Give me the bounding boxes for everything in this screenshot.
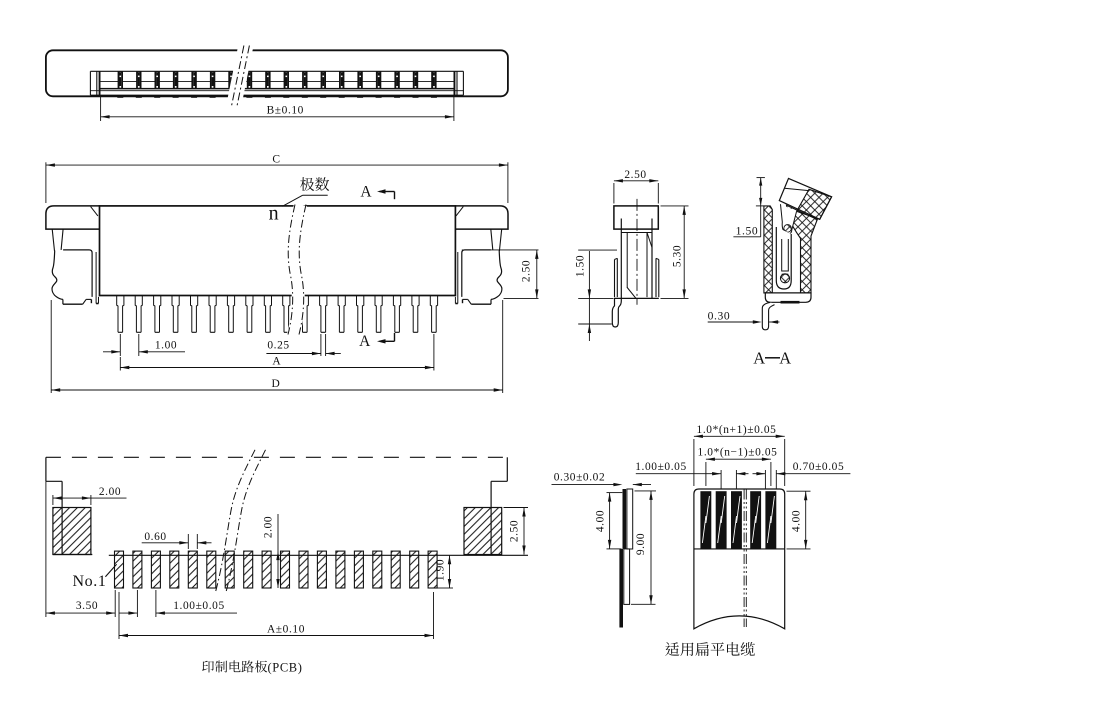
svg-text:C: C [272, 153, 280, 165]
svg-text:2.00: 2.00 [99, 486, 121, 498]
svg-text:A: A [360, 183, 372, 200]
svg-text:1.0*(n+1)±0.05: 1.0*(n+1)±0.05 [697, 424, 777, 436]
svg-text:3.50: 3.50 [76, 600, 98, 612]
svg-text:0.30±0.02: 0.30±0.02 [554, 472, 606, 484]
svg-text:A: A [272, 356, 281, 368]
svg-text:1.00±0.05: 1.00±0.05 [173, 600, 225, 612]
svg-text:n: n [269, 203, 280, 225]
svg-text:1.0*(n−1)±0.05: 1.0*(n−1)±0.05 [698, 447, 778, 459]
svg-text:1.00: 1.00 [155, 339, 177, 351]
svg-text:1.50: 1.50 [736, 224, 759, 237]
svg-text:D: D [272, 378, 281, 390]
svg-text:4.00: 4.00 [791, 510, 803, 532]
svg-text:2.50: 2.50 [509, 520, 521, 542]
svg-text:4.00: 4.00 [594, 510, 606, 532]
svg-text:9.00: 9.00 [635, 533, 647, 555]
svg-text:5.30: 5.30 [672, 245, 684, 267]
svg-text:0.30: 0.30 [708, 309, 731, 322]
svg-text:1.00±0.05: 1.00±0.05 [635, 461, 687, 473]
svg-text:A: A [753, 348, 766, 367]
svg-text:0.70±0.05: 0.70±0.05 [793, 461, 845, 473]
svg-text:A: A [779, 348, 792, 367]
svg-text:0.25: 0.25 [267, 339, 289, 351]
svg-text:2.00: 2.00 [263, 516, 275, 538]
svg-text:A: A [359, 333, 371, 350]
svg-text:A±0.10: A±0.10 [267, 624, 305, 636]
svg-text:No.1: No.1 [73, 573, 107, 590]
svg-text:2.50: 2.50 [521, 260, 533, 282]
svg-text:2.50: 2.50 [624, 169, 646, 181]
svg-text:1.50: 1.50 [575, 255, 587, 277]
svg-text:B±0.10: B±0.10 [267, 105, 304, 117]
svg-text:0.60: 0.60 [144, 531, 166, 543]
svg-text:1.90: 1.90 [435, 559, 447, 581]
svg-text:(PCB): (PCB) [268, 661, 303, 675]
